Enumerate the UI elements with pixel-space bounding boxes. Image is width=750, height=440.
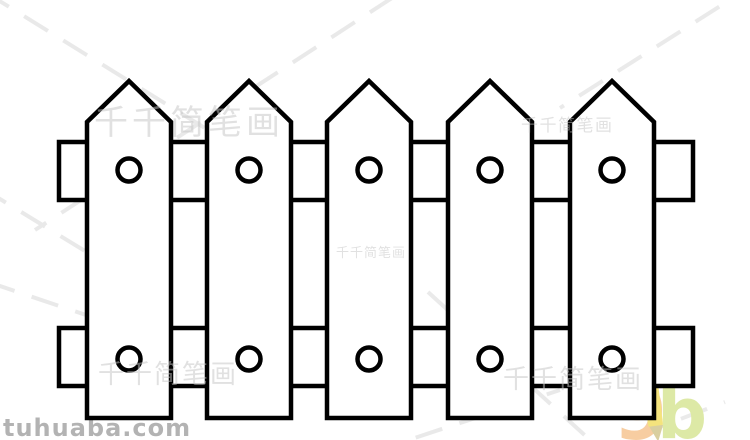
nail-hole (238, 348, 261, 371)
nail-hole (479, 348, 502, 371)
nail-hole (118, 159, 141, 182)
brand-watermark-text: 千千简笔画 (503, 365, 643, 395)
brand-watermark-text: 千千简笔画 (521, 116, 614, 136)
fence-coloring-page: tuhuaba.com 9 b (0, 0, 750, 440)
brand-watermark-text: 千千简笔画 (336, 245, 406, 261)
nail-hole (238, 159, 261, 182)
nail-hole (479, 159, 502, 182)
nail-hole (358, 348, 381, 371)
brand-watermark-text: 千千简笔画 (98, 360, 238, 390)
fence-drawing-canvas: tuhuaba.com 9 b (0, 0, 750, 440)
dashed-line (560, 0, 750, 108)
brand-watermark-text: 千千简笔画 (94, 103, 284, 143)
nail-hole (358, 159, 381, 182)
nail-hole (601, 159, 624, 182)
